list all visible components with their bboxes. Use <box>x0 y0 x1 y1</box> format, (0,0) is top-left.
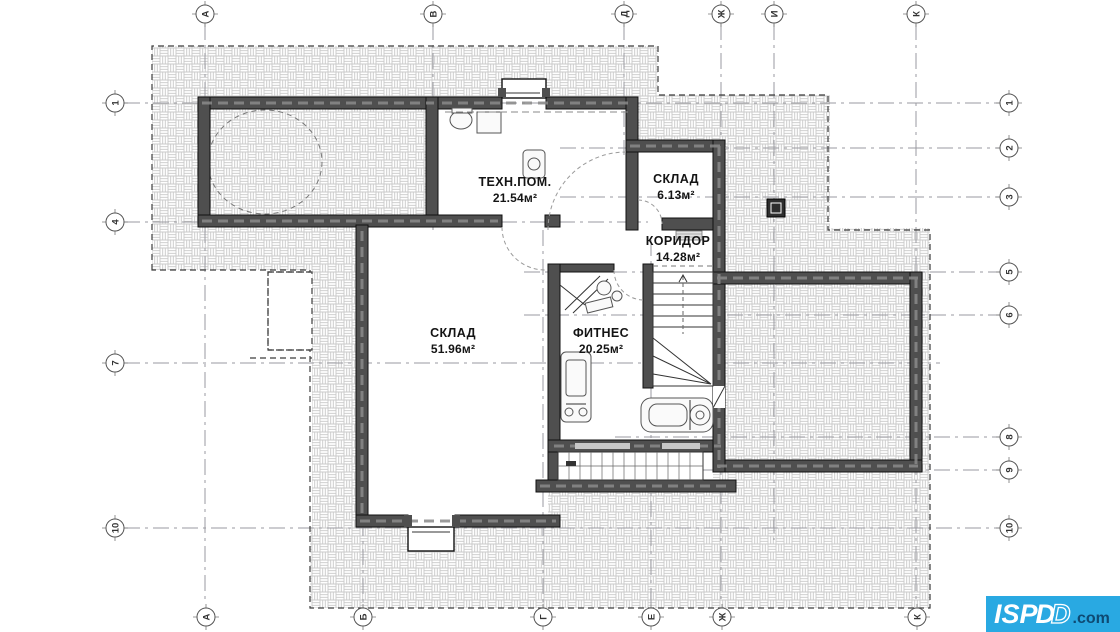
grid-marker-right-8: 8 <box>996 424 1022 450</box>
svg-text:6: 6 <box>1005 312 1016 317</box>
multi-gym-icon <box>560 276 622 313</box>
svg-text:И: И <box>770 10 781 17</box>
grid-marker-top-a: А <box>192 1 218 27</box>
grid-marker-right-5: 5 <box>996 259 1022 285</box>
grid-marker-left-1: 1 <box>102 90 128 116</box>
svg-text:Б: Б <box>359 613 370 620</box>
room-area-fitness: 20.25м² <box>579 342 623 356</box>
logo: ISPDD.com <box>986 596 1120 632</box>
svg-text:А: А <box>202 613 213 620</box>
shaft-marker <box>767 199 785 217</box>
grid-marker-right-10: 10 <box>996 515 1022 541</box>
svg-text:В: В <box>429 10 440 17</box>
bench-machine-icon <box>641 398 713 432</box>
svg-text:4: 4 <box>111 219 122 225</box>
svg-text:5: 5 <box>1005 269 1016 275</box>
grid-marker-top-k: К <box>903 1 929 27</box>
svg-text:2: 2 <box>1005 145 1016 150</box>
svg-text:Ж: Ж <box>718 612 729 622</box>
room-label-storage-small: СКЛАД <box>653 172 699 186</box>
svg-text:1: 1 <box>111 100 122 106</box>
svg-text:Е: Е <box>647 614 658 620</box>
svg-text:9: 9 <box>1005 467 1016 472</box>
grid-marker-bottom-a: А <box>193 604 219 630</box>
grid-marker-top-v: В <box>420 1 446 27</box>
room-area-storage-small: 6.13м² <box>657 188 694 202</box>
svg-text:10: 10 <box>1005 523 1016 534</box>
room-label-fitness: ФИТНЕС <box>573 326 629 340</box>
room-area-corridor: 14.28м² <box>656 250 700 264</box>
grid-marker-top-d: Д <box>611 1 637 27</box>
grid-marker-right-9: 9 <box>996 457 1022 483</box>
svg-text:3: 3 <box>1005 194 1016 199</box>
room-area-storage-large: 51.96м² <box>431 342 475 356</box>
room-label-storage-large: СКЛАД <box>430 326 476 340</box>
svg-text:А: А <box>201 10 212 17</box>
svg-text:Д: Д <box>620 10 631 17</box>
floor-plan-drawing: ТЕХН.ПОМ. 21.54м² СКЛАД 6.13м² КОРИДОР 1… <box>0 0 1120 632</box>
svg-text:Г: Г <box>539 614 550 620</box>
room-area-tech: 21.54м² <box>493 191 537 205</box>
svg-text:К: К <box>913 614 924 620</box>
svg-text:1: 1 <box>1005 100 1016 106</box>
staircase <box>653 266 713 386</box>
grid-marker-left-4: 4 <box>102 209 128 235</box>
svg-text:8: 8 <box>1005 434 1016 439</box>
grid-marker-right-3: 3 <box>996 184 1022 210</box>
grid-marker-right-2: 2 <box>996 135 1022 161</box>
treadmill-icon <box>561 352 591 422</box>
room-label-tech: ТЕХН.ПОМ. <box>478 175 551 189</box>
light-well-grate <box>558 452 703 480</box>
svg-text:10: 10 <box>111 523 122 534</box>
svg-text:Ж: Ж <box>717 9 728 19</box>
room-label-corridor: КОРИДОР <box>646 234 710 248</box>
svg-text:7: 7 <box>111 360 122 365</box>
grid-marker-top-i: И <box>761 1 787 27</box>
entry-door-top <box>498 79 550 98</box>
grid-marker-right-6: 6 <box>996 302 1022 328</box>
grid-marker-left-10: 10 <box>102 515 128 541</box>
grid-marker-right-1: 1 <box>996 90 1022 116</box>
floor-plan-page: ТЕХН.ПОМ. 21.54м² СКЛАД 6.13м² КОРИДОР 1… <box>0 0 1120 632</box>
grid-marker-left-7: 7 <box>102 350 128 376</box>
grid-marker-top-zh: Ж <box>708 1 734 27</box>
svg-text:К: К <box>912 11 923 17</box>
